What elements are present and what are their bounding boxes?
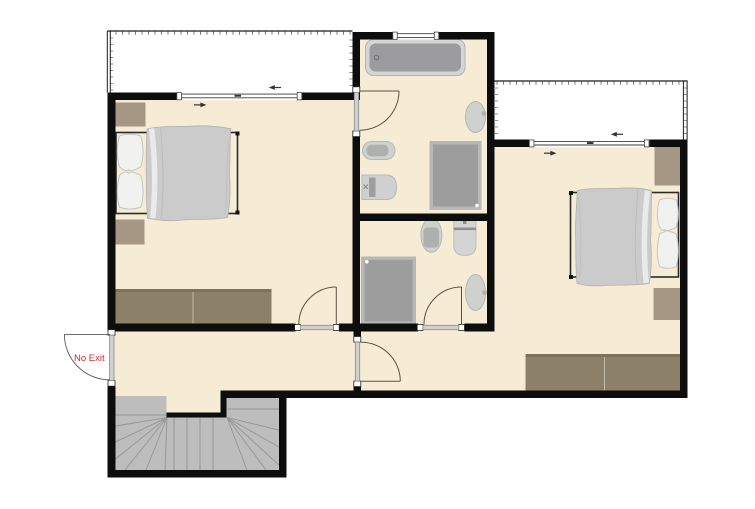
svg-text:No Exit: No Exit bbox=[74, 353, 105, 364]
